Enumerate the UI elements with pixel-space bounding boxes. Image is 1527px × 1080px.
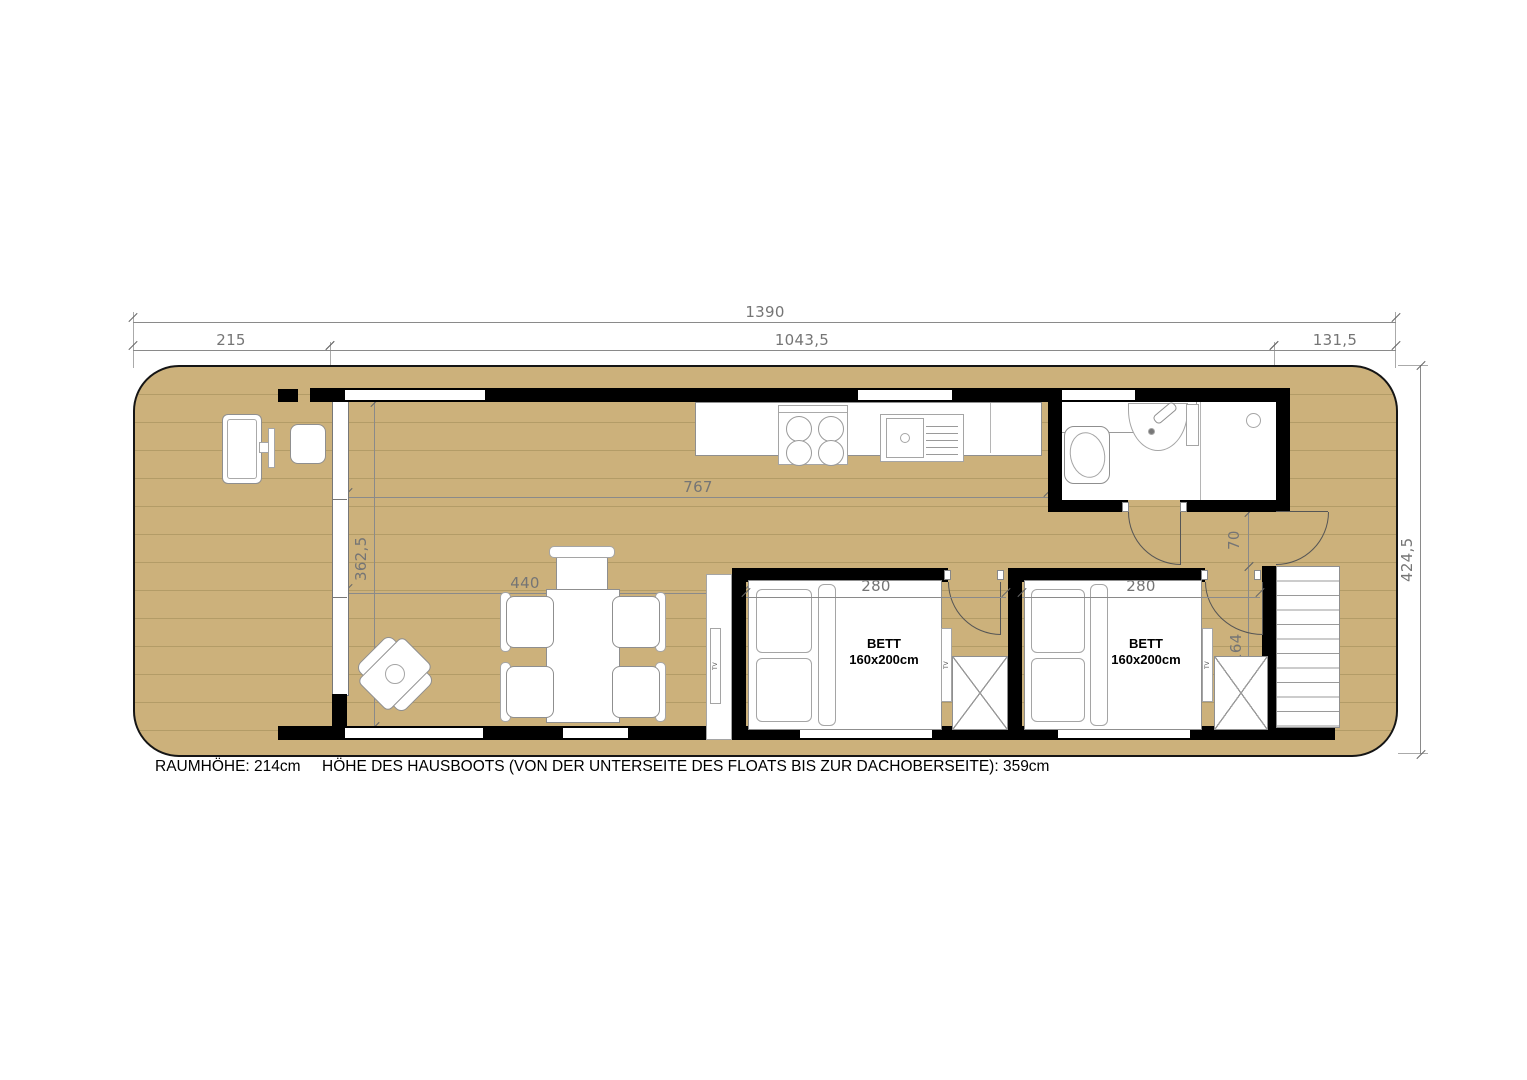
pillow <box>756 658 812 722</box>
dim-label-bed1-width: 280 <box>836 577 916 595</box>
chair-backrest <box>549 546 615 558</box>
tv-label: TV <box>711 629 720 703</box>
stove-burner-icon <box>786 440 812 466</box>
cabin-right-wall <box>1276 402 1290 512</box>
deck-tv-bracket <box>268 428 275 468</box>
extension-line <box>1398 365 1428 366</box>
glass-pane-divider <box>332 597 347 598</box>
bathroom-door-leaf <box>1180 512 1181 565</box>
window <box>858 390 952 400</box>
door-jamb <box>1254 570 1261 580</box>
dim-label-overall-width: 424,5 <box>1398 515 1416 605</box>
bed1-label: BETT 160x200cm <box>824 636 944 669</box>
stove-burner-icon <box>786 416 812 442</box>
wardrobe-icon <box>952 656 1008 730</box>
dim-line-cabin <box>330 350 1274 351</box>
bed2-label-line2: 160x200cm <box>1111 652 1180 667</box>
dim-label-front-deck: 215 <box>181 331 281 349</box>
door-jamb <box>1180 502 1187 512</box>
dim-line-bed2-width <box>1022 597 1260 598</box>
bedroom1-door-leaf <box>1000 582 1001 634</box>
bed1-label-line1: BETT <box>867 636 901 651</box>
glass-pane-divider <box>332 499 347 500</box>
dim-label-living-width: 767 <box>658 478 738 496</box>
bathroom-mirror <box>1186 404 1199 446</box>
window <box>563 728 628 738</box>
dim-label-overall-length: 1390 <box>715 303 815 321</box>
dining-table <box>546 589 620 723</box>
bathroom-bottom-wall <box>1180 500 1290 512</box>
dim-label-cabin: 1043,5 <box>752 331 852 349</box>
floor-plan-canvas: 1390 215 1043,5 131,5 424,5 767 230 362,… <box>0 0 1527 1080</box>
door-jamb <box>1201 570 1208 580</box>
counter-divider <box>990 403 991 453</box>
chair <box>612 666 660 718</box>
stove-burner-icon <box>818 440 844 466</box>
pillow <box>756 589 812 653</box>
extension-line <box>1398 753 1428 754</box>
chair <box>612 596 660 648</box>
door-jamb <box>997 570 1004 580</box>
pillow <box>1031 658 1085 722</box>
shower-drain-icon <box>1246 413 1261 428</box>
dim-line-overall-length <box>133 322 1396 323</box>
tv-icon: TV <box>941 628 952 702</box>
wardrobe-icon <box>1214 656 1268 730</box>
door-jamb <box>1122 502 1129 512</box>
sliding-glass-wall <box>332 400 349 696</box>
window <box>345 728 483 738</box>
bathroom-left-wall <box>1048 402 1062 512</box>
sink-drain-hole <box>900 433 910 443</box>
extension-line <box>1395 312 1396 368</box>
chair <box>506 596 554 648</box>
room-height-note: RAUMHÖHE: 214cm <box>155 758 301 776</box>
window <box>345 390 485 400</box>
top-wall-wing <box>278 389 298 402</box>
dim-label-rear-deck: 131,5 <box>1285 331 1385 349</box>
basin-drain <box>1148 428 1155 435</box>
extension-line <box>133 312 134 368</box>
stove-burner-icon <box>818 416 844 442</box>
tv-label: TV <box>1203 629 1212 701</box>
bed2-label: BETT 160x200cm <box>1091 636 1201 669</box>
chair <box>506 666 554 718</box>
sink-drainboard <box>926 420 958 456</box>
dim-line-front-deck <box>133 350 330 351</box>
deck-side-table <box>290 424 326 464</box>
deck-tv <box>222 414 262 484</box>
dim-line-bed1-width <box>746 597 1006 598</box>
bathroom-bottom-wall <box>1048 500 1128 512</box>
bed1-label-line2: 160x200cm <box>849 652 918 667</box>
pillow <box>1031 589 1085 653</box>
tv-icon: TV <box>1202 628 1213 702</box>
tv-label: TV <box>942 629 951 701</box>
bed2-label-line1: BETT <box>1129 636 1163 651</box>
dim-line-overall-width <box>1420 365 1421 754</box>
dim-line-living-width <box>348 497 1048 498</box>
dim-label-bed2-width: 280 <box>1101 577 1181 595</box>
dim-line-hall-width <box>1248 512 1249 566</box>
boat-height-note: HÖHE DES HAUSBOOTS (VON DER UNTERSEITE D… <box>322 758 1049 776</box>
stairs <box>1276 566 1340 728</box>
tv-icon: TV <box>710 628 721 704</box>
entrance-door-leaf <box>1276 511 1328 512</box>
dim-label-glass-front: 362,5 <box>352 513 370 605</box>
shower-divider <box>1200 402 1201 500</box>
dim-label-hall-width: 70 <box>1225 515 1243 565</box>
dim-line-rear-deck <box>1274 350 1396 351</box>
window <box>1062 390 1135 400</box>
door-jamb <box>944 570 951 580</box>
